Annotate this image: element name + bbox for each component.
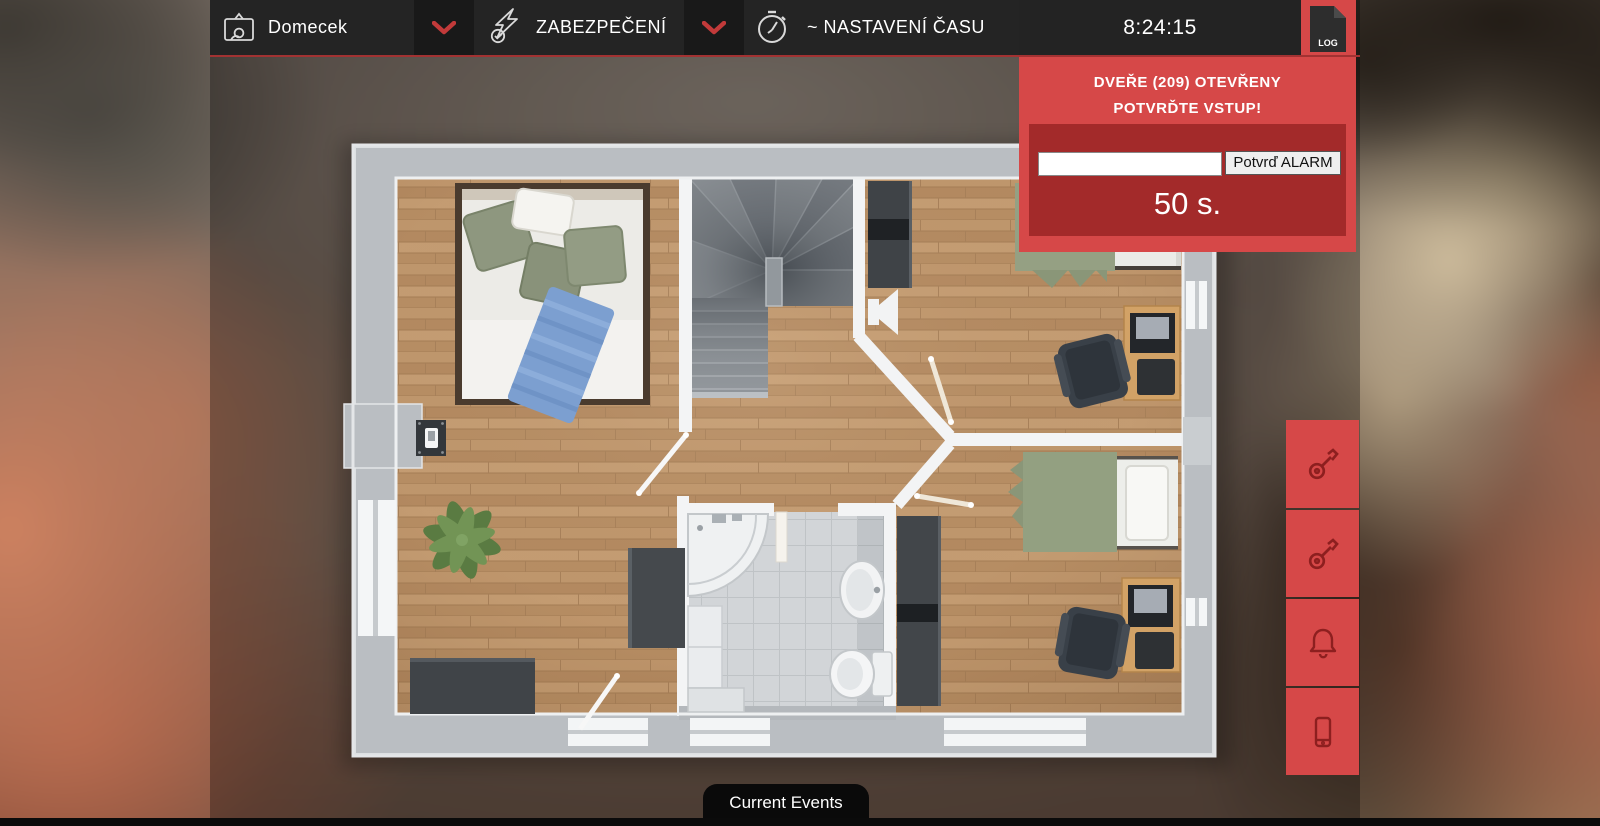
svg-text:LOG: LOG [1318, 38, 1338, 48]
